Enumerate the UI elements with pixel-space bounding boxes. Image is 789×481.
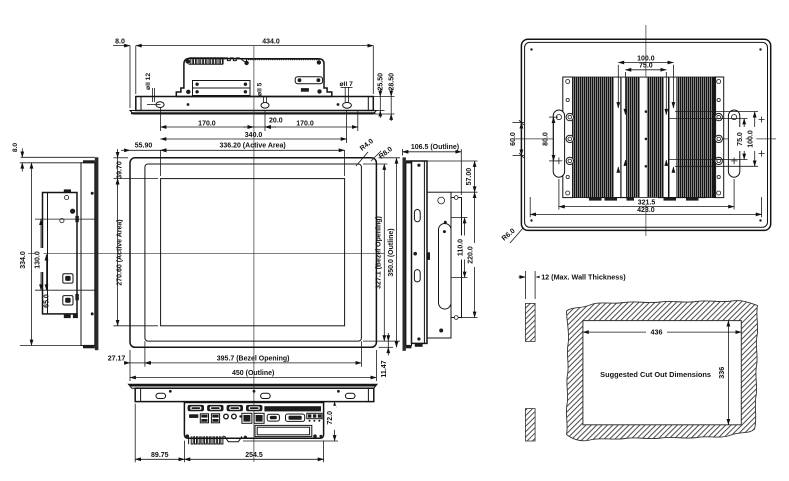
svg-text:75.0: 75.0 bbox=[639, 63, 653, 70]
svg-text:60.0: 60.0 bbox=[510, 132, 517, 146]
svg-text:436: 436 bbox=[651, 328, 663, 337]
svg-text:130.0: 130.0 bbox=[35, 251, 42, 269]
svg-text:20.0: 20.0 bbox=[269, 118, 283, 125]
svg-text:100.0: 100.0 bbox=[637, 55, 655, 62]
svg-text:øll 7: øll 7 bbox=[340, 81, 354, 88]
svg-text:336: 336 bbox=[717, 367, 726, 379]
svg-text:110.0: 110.0 bbox=[457, 239, 464, 256]
svg-text:28.50: 28.50 bbox=[389, 73, 396, 91]
svg-text:8.0: 8.0 bbox=[115, 38, 125, 45]
svg-text:12 (Max. Wall Thickness): 12 (Max. Wall Thickness) bbox=[541, 273, 626, 282]
svg-text:65.0: 65.0 bbox=[44, 294, 51, 308]
svg-text:170.0: 170.0 bbox=[198, 121, 216, 128]
svg-text:106.5 (Outline): 106.5 (Outline) bbox=[411, 144, 459, 151]
svg-text:254.5: 254.5 bbox=[245, 452, 263, 459]
svg-text:11.47: 11.47 bbox=[381, 360, 388, 377]
svg-text:350.0 (Outline): 350.0 (Outline) bbox=[388, 228, 395, 276]
svg-text:80.0: 80.0 bbox=[542, 132, 549, 146]
svg-text:øll 12: øll 12 bbox=[145, 73, 152, 90]
svg-text:39.70: 39.70 bbox=[116, 161, 123, 179]
svg-text:25.50: 25.50 bbox=[378, 73, 385, 91]
svg-text:27.17: 27.17 bbox=[108, 355, 126, 362]
svg-text:321.5: 321.5 bbox=[638, 199, 656, 206]
svg-text:336.20 (Active Area): 336.20 (Active Area) bbox=[219, 143, 285, 150]
svg-text:327.1 (Bezel Opening): 327.1 (Bezel Opening) bbox=[376, 216, 383, 289]
svg-text:75.0: 75.0 bbox=[737, 132, 744, 146]
svg-text:434.0: 434.0 bbox=[262, 38, 280, 45]
svg-text:334.0: 334.0 bbox=[20, 251, 27, 269]
svg-text:270.60 (Active Area): 270.60 (Active Area) bbox=[116, 219, 123, 285]
svg-text:øll 5: øll 5 bbox=[256, 82, 263, 96]
svg-text:220.0: 220.0 bbox=[467, 246, 474, 264]
svg-text:100.0: 100.0 bbox=[747, 130, 754, 148]
svg-text:423.0: 423.0 bbox=[637, 207, 655, 214]
svg-text:72.0: 72.0 bbox=[327, 411, 334, 425]
svg-text:Suggested Cut Out Dimensions: Suggested Cut Out Dimensions bbox=[600, 370, 711, 379]
svg-text:57.00: 57.00 bbox=[466, 168, 473, 186]
svg-text:170.0: 170.0 bbox=[296, 121, 314, 128]
svg-text:55.90: 55.90 bbox=[135, 143, 153, 150]
svg-text:89.75: 89.75 bbox=[151, 452, 169, 459]
svg-text:8.0: 8.0 bbox=[12, 143, 19, 153]
svg-text:450 (Outline): 450 (Outline) bbox=[232, 370, 274, 377]
svg-text:395.7 (Bezel Opening): 395.7 (Bezel Opening) bbox=[217, 355, 290, 362]
